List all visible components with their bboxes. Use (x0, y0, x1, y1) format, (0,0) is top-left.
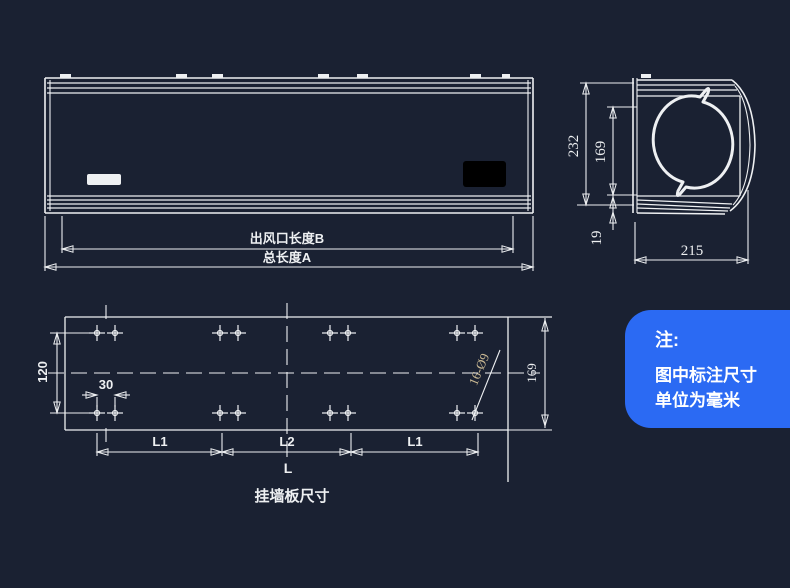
side-face-height-dim-label: 169 (593, 141, 609, 164)
plate-height-dim-label: 169 (524, 363, 539, 383)
dim-outlet-length: 出风口长度B (62, 216, 513, 253)
l1-right-dim-label: L1 (407, 434, 422, 449)
dim-side-bottom: 19 (589, 195, 616, 246)
side-depth-dim-label: 215 (681, 243, 704, 259)
dim-plate-height: 169 (524, 318, 548, 428)
total-length-dim-label: 总长度A (263, 250, 312, 265)
brand-logo (87, 174, 121, 185)
side-top-tab (641, 74, 651, 78)
outlet-length-dim-label: 出风口长度B (250, 231, 324, 246)
side-height-dim-label: 232 (566, 135, 582, 158)
l2-dim-label: L2 (279, 434, 294, 449)
fan-impeller-icon (653, 89, 733, 196)
dim-side-face-height: 169 (593, 107, 637, 195)
plate-row-spacing-dim-label: 120 (35, 361, 50, 383)
holes-callout: 16-Ø9 (465, 350, 500, 420)
note-line-1: 图中标注尺寸 (655, 364, 782, 389)
note-box: 注: 图中标注尺寸 单位为毫米 (625, 310, 790, 428)
l-total-dim-label: L (284, 460, 293, 476)
note-heading: 注: (655, 326, 782, 352)
side-bottom-dim-label: 19 (589, 231, 605, 246)
mounting-plate-drawing: 120 30 169 16-Ø9 (35, 303, 552, 505)
note-line-2: 单位为毫米 (655, 389, 782, 414)
drawing-layer: 出风口长度B 总长度A (0, 0, 790, 588)
front-view-drawing: 出风口长度B 总长度A (45, 74, 533, 271)
plate-title: 挂墙板尺寸 (254, 487, 329, 505)
holes-callout-label: 16-Ø9 (465, 351, 492, 387)
side-view-drawing: 232 169 19 215 (566, 74, 755, 264)
technical-drawing-canvas: 出风口长度B 总长度A (0, 0, 790, 588)
l1-left-dim-label: L1 (152, 434, 167, 449)
dim-hole-pair-spacing: 30 (82, 377, 130, 407)
hole-pair-dim-label: 30 (99, 377, 113, 392)
display-window (463, 161, 506, 187)
